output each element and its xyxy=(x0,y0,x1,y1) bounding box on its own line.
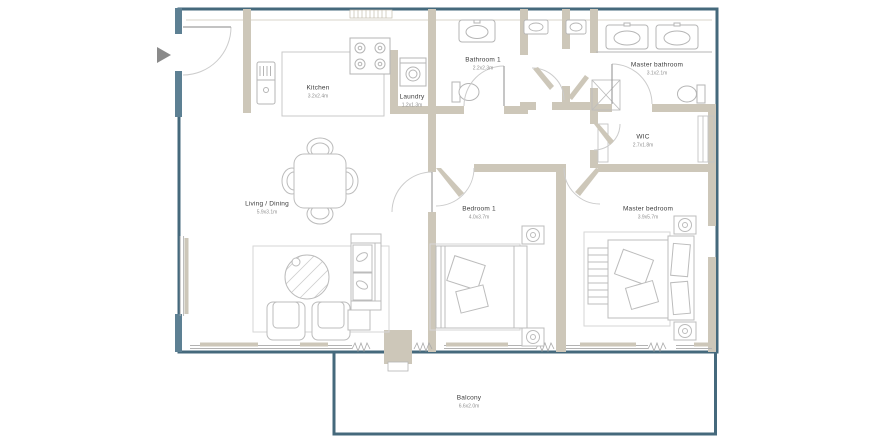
master-bath-toilet-icon xyxy=(678,85,706,103)
bench-icon xyxy=(588,248,608,304)
bathroom1-sink-icon xyxy=(459,20,495,42)
floor-plan-canvas xyxy=(0,0,890,440)
bathroom1-toilet-icon xyxy=(452,82,479,102)
stove-icon xyxy=(350,38,390,74)
master-bed-icon xyxy=(608,236,694,320)
balcony-threshold xyxy=(388,362,408,371)
sofa-icon xyxy=(351,234,381,310)
floor-plan-image: Kitchen 3.2x2.4m Laundry 1.2x1.3m Bathro… xyxy=(0,0,890,440)
side-table-icon xyxy=(348,310,370,330)
entrance-arrow-icon xyxy=(157,47,171,63)
bedroom1-bed-icon xyxy=(436,246,527,328)
washing-machine-icon xyxy=(400,58,426,86)
kitchen-vent-icon xyxy=(350,10,392,18)
fridge-icon xyxy=(257,62,275,104)
